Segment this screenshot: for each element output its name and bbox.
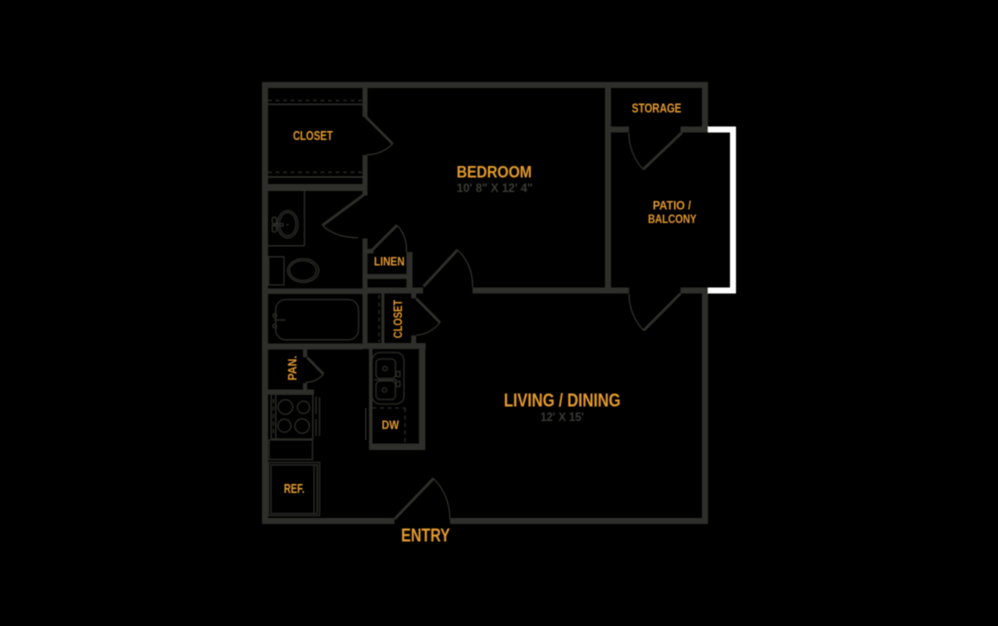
svg-text:LIVING / DINING: LIVING / DINING	[504, 389, 621, 410]
svg-text:12' X 15': 12' X 15'	[541, 412, 585, 424]
svg-text:CLOSET: CLOSET	[391, 299, 405, 338]
svg-text:REF.: REF.	[284, 482, 305, 496]
svg-text:10' 8" X 12' 4": 10' 8" X 12' 4"	[457, 183, 533, 195]
svg-text:BALCONY: BALCONY	[648, 212, 697, 226]
svg-text:STORAGE: STORAGE	[632, 101, 682, 116]
svg-text:DW: DW	[382, 418, 400, 432]
svg-text:ENTRY: ENTRY	[401, 526, 450, 546]
svg-text:LINEN: LINEN	[374, 255, 405, 269]
svg-text:PAN.: PAN.	[288, 356, 300, 381]
svg-text:BEDROOM: BEDROOM	[457, 163, 532, 182]
svg-text:PATIO /: PATIO /	[653, 199, 692, 213]
svg-text:CLOSET: CLOSET	[293, 129, 333, 143]
